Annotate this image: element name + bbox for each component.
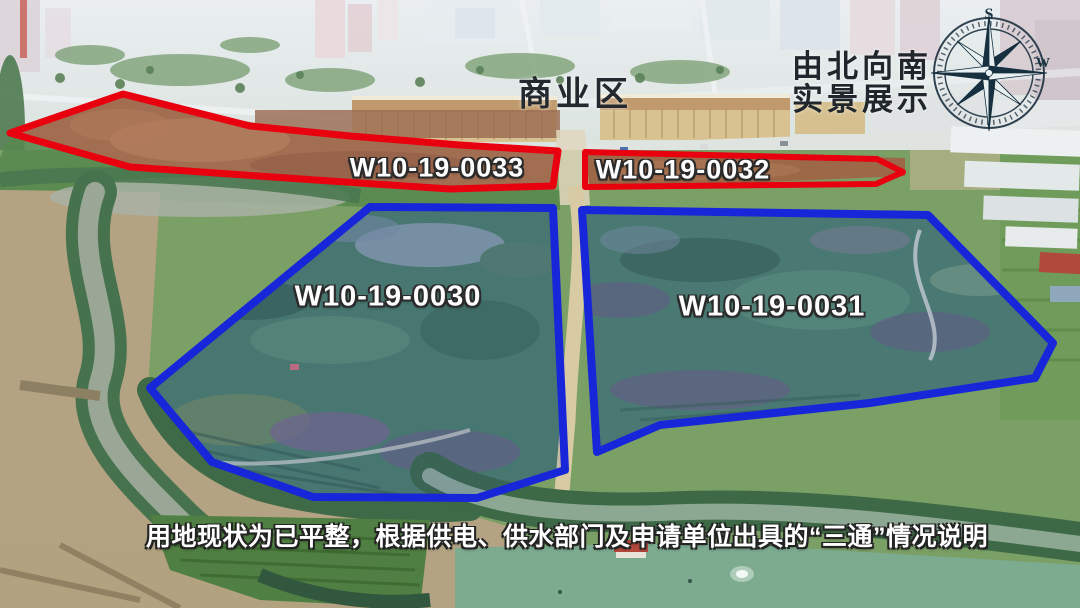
parcel-label-w10-19-0032: W10-19-0032 xyxy=(596,155,771,186)
status-caption: 用地现状为已平整，根据供电、供水部门及申请单位出具的“三通”情况说明 xyxy=(146,517,988,553)
annotated-aerial-map: 商业区 由北向南 实景展示 W10-19-0033 W10-19-0032 W1… xyxy=(0,0,1080,608)
compass-rose-icon: S W xyxy=(926,5,1052,131)
view-direction-line1: 由北向南 xyxy=(792,50,932,83)
view-direction-label: 由北向南 实景展示 xyxy=(792,50,932,116)
compass-letter-w: W xyxy=(1036,56,1050,71)
compass-letter-s: S xyxy=(985,6,994,23)
view-direction-line2: 实景展示 xyxy=(792,83,932,116)
zone-label: 商业区 xyxy=(518,67,632,116)
parcel-label-w10-19-0031: W10-19-0031 xyxy=(679,291,866,324)
parcel-label-w10-19-0033: W10-19-0033 xyxy=(350,153,525,184)
parcel-label-w10-19-0030: W10-19-0030 xyxy=(295,281,482,314)
